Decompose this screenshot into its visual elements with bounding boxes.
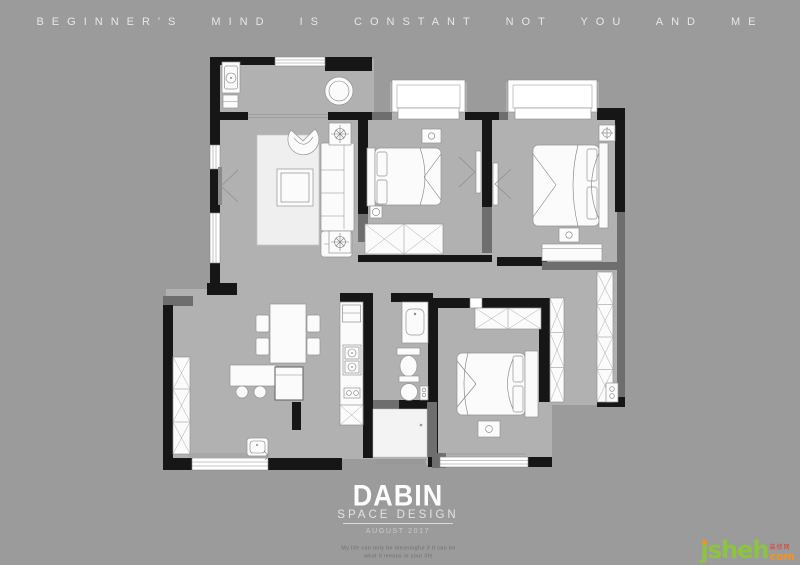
sideboard xyxy=(230,365,276,386)
entry-floor xyxy=(373,409,427,457)
switch-panel xyxy=(606,383,618,402)
nightstand xyxy=(478,421,500,437)
room-kitchen xyxy=(340,302,363,425)
footer: DABIN SPACE DESIGN AUGUST 2017 My life c… xyxy=(2,483,794,563)
stool xyxy=(236,386,248,398)
caption-line-1: My life can only be meaningful if it can… xyxy=(341,545,455,553)
nightstand xyxy=(559,228,579,242)
ceiling-fixture-icon xyxy=(599,125,615,141)
wardrobe xyxy=(475,308,541,329)
wardrobe xyxy=(365,224,443,254)
bay-window-master xyxy=(508,80,597,119)
dining-chair xyxy=(256,338,269,355)
room-entry xyxy=(373,409,427,463)
ceiling-fixture-icon xyxy=(329,123,351,145)
caption-text: My life can only be meaningful if it can… xyxy=(341,545,455,562)
kitchen-sink xyxy=(344,388,360,398)
date-text: AUGUST 2017 xyxy=(366,528,430,535)
nightstand xyxy=(422,129,441,143)
bed xyxy=(367,148,441,206)
ceiling-fixture-icon xyxy=(329,231,351,253)
floor-plan xyxy=(158,53,636,473)
stove xyxy=(343,345,361,375)
slogan-text: BEGINNER'S MIND IS CONSTANT NOT YOU AND … xyxy=(0,16,800,28)
watermark-logo-text: ȷsheh xyxy=(700,538,768,562)
bed xyxy=(457,351,538,417)
base-cabinet xyxy=(340,405,363,425)
wardrobe-left xyxy=(550,298,564,402)
toilet xyxy=(399,376,419,401)
stool xyxy=(254,386,266,398)
refrigerator xyxy=(275,367,303,400)
brand-title: DABIN xyxy=(353,482,444,510)
watermark-suffix: com xyxy=(769,552,795,562)
dining-chair xyxy=(256,315,269,332)
bed xyxy=(533,143,608,228)
dining-chair xyxy=(307,338,320,355)
vanity-sink xyxy=(402,302,428,343)
poster-page: BEGINNER'S MIND IS CONSTANT NOT YOU AND … xyxy=(0,0,800,565)
wardrobe-right xyxy=(597,272,613,402)
dining-table xyxy=(270,304,306,363)
coffee-table xyxy=(277,169,313,206)
washing-machine xyxy=(222,62,240,93)
round-table xyxy=(325,77,353,105)
site-watermark: ȷsheh 装修网 com xyxy=(700,538,795,562)
caption-line-2: what it means in your life xyxy=(341,553,455,561)
bay-window-bedroom2 xyxy=(392,80,465,119)
dining-chair xyxy=(307,315,320,332)
stool xyxy=(370,206,382,218)
divider-rule xyxy=(343,523,453,524)
water-heater-knobs xyxy=(420,386,428,400)
desk xyxy=(542,244,602,261)
balcony-cabinet xyxy=(223,95,238,108)
storage-cabinet xyxy=(173,357,190,454)
